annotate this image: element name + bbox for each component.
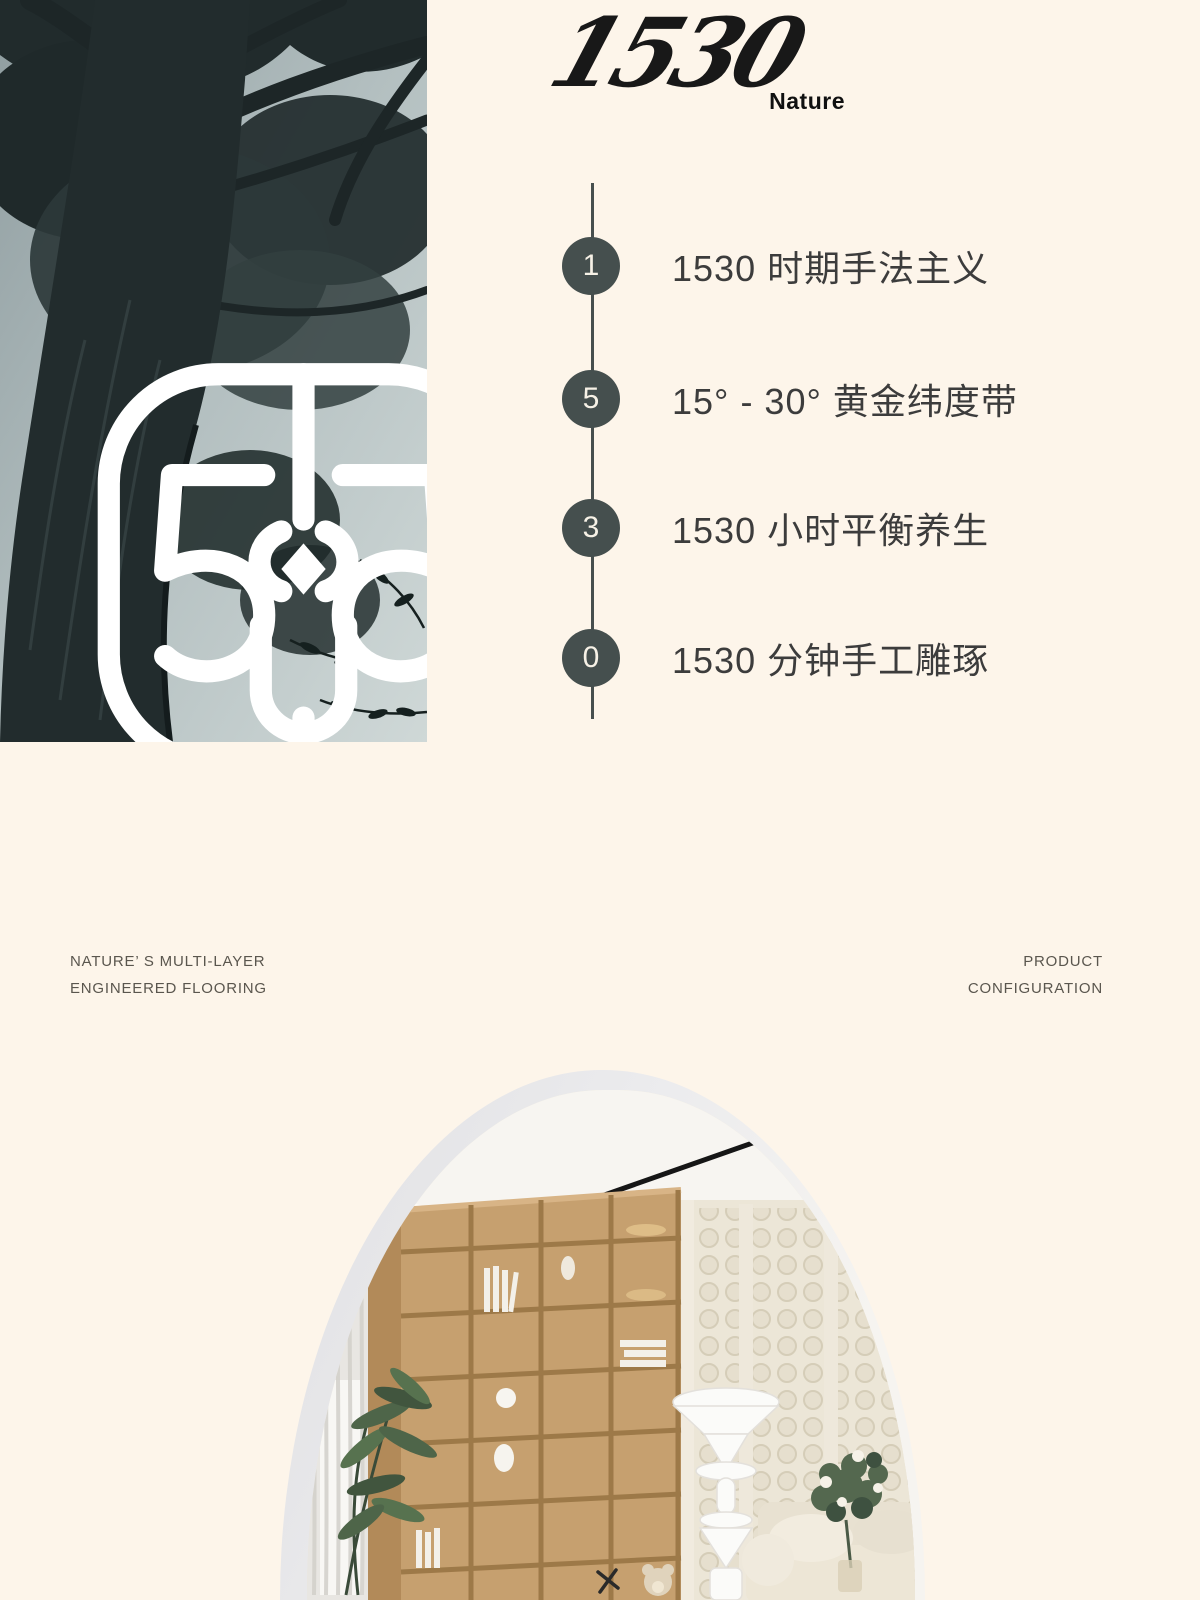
- timeline-node-digit: 5: [583, 382, 600, 416]
- timeline-label: 1530 时期手法主义: [672, 237, 989, 295]
- timeline-node-5: 5: [562, 370, 620, 428]
- timeline-node-1: 1: [562, 237, 620, 295]
- caption-left-line1: NATURE’ S MULTI-LAYER: [70, 948, 267, 975]
- brand-logo: 1530 Nature: [540, 6, 850, 126]
- timeline-label: 1530 小时平衡养生: [672, 499, 989, 557]
- caption-right-line1: PRODUCT: [968, 948, 1103, 975]
- interior-photo: [307, 1090, 915, 1600]
- timeline-item-1: 1 1530 时期手法主义: [0, 237, 1200, 297]
- caption-left: NATURE’ S MULTI-LAYER ENGINEERED FLOORIN…: [70, 948, 267, 1002]
- timeline-node-digit: 0: [583, 641, 600, 675]
- timeline-item-2: 5 15° - 30° 黄金纬度带: [0, 370, 1200, 430]
- timeline-item-3: 3 1530 小时平衡养生: [0, 499, 1200, 559]
- timeline-node-digit: 1: [583, 249, 600, 283]
- caption-left-line2: ENGINEERED FLOORING: [70, 975, 267, 1002]
- logo-name: Nature: [735, 88, 845, 115]
- interior-photo-illustration: [307, 1090, 915, 1600]
- timeline-item-4: 0 1530 分钟手工雕琢: [0, 629, 1200, 689]
- timeline-label: 1530 分钟手工雕琢: [672, 629, 989, 687]
- product-page: 1530 Nature 1 1530 时期手法主义 5 15° - 30° 黄金…: [0, 0, 1200, 1600]
- caption-right: PRODUCT CONFIGURATION: [968, 948, 1103, 1002]
- logo-number: 1530: [540, 6, 811, 101]
- interior-arch-frame: [280, 1070, 925, 1600]
- timeline-label: 15° - 30° 黄金纬度带: [672, 370, 1018, 428]
- caption-right-line2: CONFIGURATION: [968, 975, 1103, 1002]
- timeline-node-3: 3: [562, 499, 620, 557]
- timeline-node-digit: 3: [583, 511, 600, 545]
- timeline-node-0: 0: [562, 629, 620, 687]
